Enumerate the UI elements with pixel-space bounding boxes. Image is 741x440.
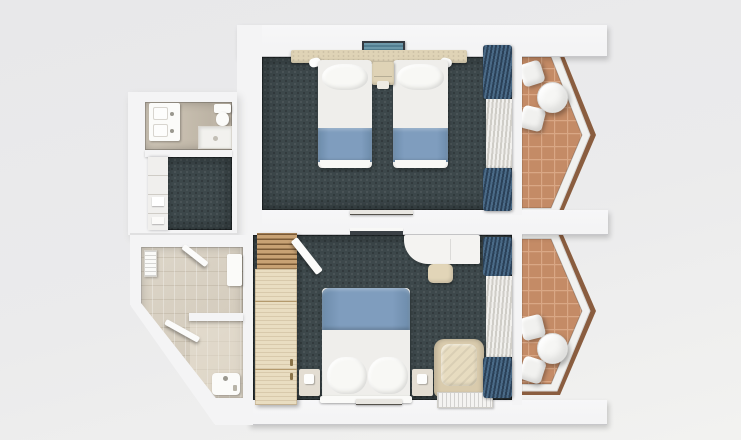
- annex-seam: [130, 233, 237, 235]
- closet-shelf: [148, 213, 168, 214]
- bathroom-partition: [189, 313, 243, 321]
- armchair: [434, 339, 484, 397]
- wardrobe-handle-icon: [290, 359, 293, 366]
- shower-tray: [198, 126, 232, 149]
- faucet-icon: [223, 376, 228, 381]
- balcony-table: [537, 333, 568, 364]
- closet-shelf: [148, 194, 168, 195]
- wall-console: [350, 210, 413, 215]
- pillow: [322, 64, 368, 90]
- window-wall-lower: [512, 230, 522, 405]
- balcony-table: [537, 82, 568, 113]
- sink-icon: [153, 107, 168, 120]
- open-shelf-closet: [148, 157, 168, 230]
- bed-runner: [318, 128, 372, 162]
- closet-shelf: [148, 175, 168, 176]
- twin-bed-left: [318, 60, 372, 168]
- bedside-table-left: [299, 369, 320, 396]
- shower-drain-icon: [213, 136, 218, 141]
- closet-item: [152, 217, 164, 224]
- washbasin: [212, 373, 240, 395]
- sheer-curtain: [486, 99, 512, 168]
- double-bed: [322, 288, 410, 399]
- bottom-exterior-wall: [248, 400, 607, 425]
- navy-curtain: [483, 168, 512, 211]
- washbasin-vanity: [149, 103, 180, 141]
- desk: [404, 235, 480, 264]
- closet-item: [152, 197, 164, 206]
- wardrobe-seam: [255, 369, 297, 370]
- wardrobe-seam: [255, 301, 297, 302]
- toilet-bowl: [216, 112, 229, 126]
- luggage-rack: [257, 233, 297, 270]
- middle-divider-wall: [237, 210, 608, 235]
- floor-plan-render: [0, 0, 741, 440]
- bedside-lamp-icon: [304, 374, 314, 384]
- bed-runner: [322, 288, 410, 330]
- bed-runner: [393, 128, 448, 162]
- bedside-lamp-icon: [417, 374, 427, 384]
- bedside-table-right: [412, 369, 433, 396]
- pillow: [327, 357, 367, 394]
- sheer-curtain: [486, 276, 512, 357]
- bed-foot: [320, 160, 370, 168]
- desk-drawer-line: [450, 239, 451, 260]
- bathroom-hall-wall: [145, 150, 232, 157]
- navy-curtain: [483, 237, 512, 276]
- wardrobe-handle-icon: [290, 373, 293, 380]
- window-wall-upper: [512, 45, 522, 215]
- pillow: [368, 357, 408, 394]
- toiletry-icon: [233, 385, 237, 391]
- desk-stool: [428, 264, 453, 283]
- bedside-accessory: [377, 81, 389, 89]
- towel-radiator: [144, 250, 157, 277]
- navy-curtain: [483, 357, 512, 398]
- sink-icon: [153, 124, 168, 137]
- wall-tv: [350, 231, 403, 235]
- faucet-icon: [170, 112, 174, 116]
- navy-curtain: [483, 45, 512, 99]
- armchair-cushion: [441, 344, 477, 386]
- left-wall-upper-unit: [237, 25, 262, 235]
- drawer-line: [374, 76, 392, 77]
- door-threshold: [356, 399, 402, 405]
- faucet-icon: [170, 129, 174, 133]
- twin-bed-right: [393, 60, 448, 168]
- wall-cabinet: [227, 254, 242, 286]
- wardrobe: [255, 269, 297, 405]
- pillow: [397, 64, 444, 90]
- bed-foot: [395, 160, 446, 168]
